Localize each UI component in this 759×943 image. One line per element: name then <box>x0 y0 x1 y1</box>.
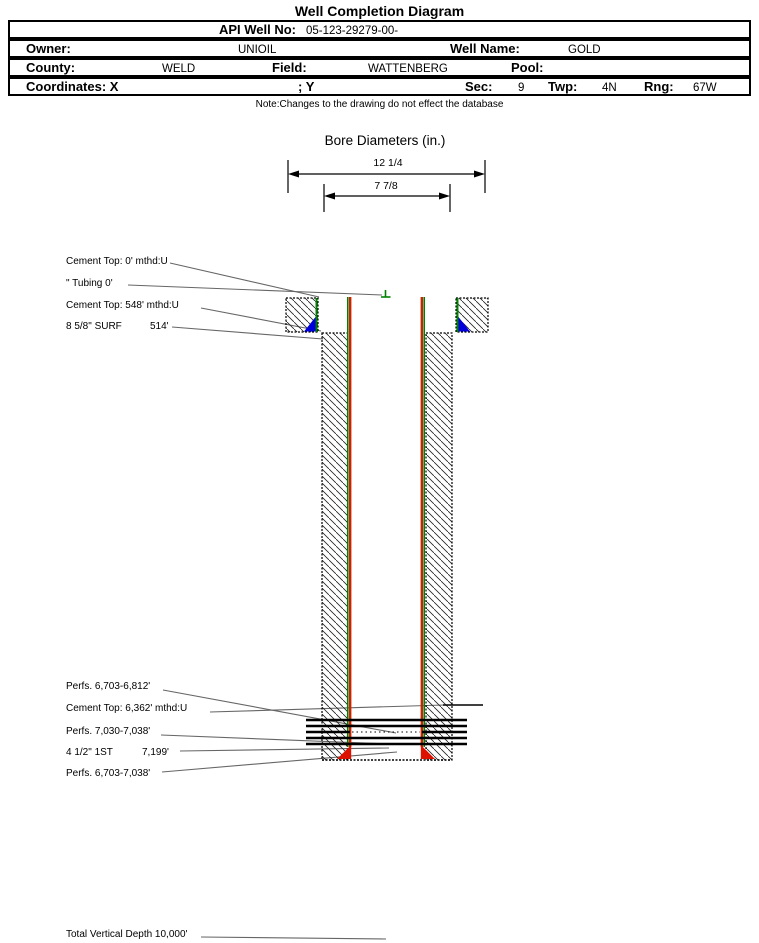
production-shoe-left <box>337 745 351 759</box>
annotation-surface-casing: 8 5/8" SURF <box>66 321 122 332</box>
county-value: WELD <box>162 62 195 76</box>
coordinates-y-label: ; Y <box>298 80 314 94</box>
well-completion-page: Well Completion Diagram API Well No: 05-… <box>0 0 759 943</box>
perforation-lines <box>306 720 467 744</box>
bore-diameter-inner-label: 7 7/8 <box>336 180 436 192</box>
header-row-county: County: WELD Field: WATTENBERG Pool: <box>8 58 751 77</box>
field-value: WATTENBERG <box>368 62 448 76</box>
header-row-coordinates: Coordinates: X ; Y Sec: 9 Twp: 4N Rng: 6… <box>8 77 751 96</box>
annotation-tubing-0: " Tubing 0' <box>66 278 113 289</box>
annotation-cement-top-6362: Cement Top: 6,362' mthd:U <box>66 703 187 714</box>
header-row-api: API Well No: 05-123-29279-00- <box>8 20 751 39</box>
surface-shoe-right <box>459 317 471 332</box>
rng-value: 67W <box>693 81 717 95</box>
owner-value: UNIOIL <box>238 43 276 57</box>
production-shoe-right <box>421 745 435 759</box>
well-name-value: GOLD <box>568 43 601 57</box>
bore-diameters-title: Bore Diameters (in.) <box>260 133 510 148</box>
rng-label: Rng: <box>644 80 674 94</box>
twp-value: 4N <box>602 81 617 95</box>
header-row-owner: Owner: UNIOIL Well Name: GOLD <box>8 39 751 58</box>
annotation-production-casing-depth: 7,199' <box>142 747 169 758</box>
tubing-top-marker <box>381 290 391 298</box>
production-cement-right <box>426 333 452 760</box>
api-value: 05-123-29279-00- <box>306 24 398 38</box>
twp-label: Twp: <box>548 80 577 94</box>
annotation-cement-top-0: Cement Top: 0' mthd:U <box>66 256 168 267</box>
surface-cement-left <box>286 298 318 332</box>
bore-diameter-outer-label: 12 1/4 <box>338 157 438 169</box>
database-note: Note:Changes to the drawing do not effec… <box>0 99 759 110</box>
surface-cement-right <box>456 298 488 332</box>
annotation-total-vertical-depth: Total Vertical Depth 10,000' <box>66 929 187 940</box>
county-label: County: <box>26 61 75 75</box>
production-cement-left <box>322 333 348 760</box>
page-title: Well Completion Diagram <box>0 3 759 19</box>
annotation-perfs-mid: Perfs. 7,030-7,038' <box>66 726 150 737</box>
pool-label: Pool: <box>511 61 544 75</box>
well-name-label: Well Name: <box>450 42 520 56</box>
annotation-leader-lines <box>128 263 444 939</box>
surface-shoe-left <box>304 317 316 332</box>
field-label: Field: <box>272 61 307 75</box>
owner-label: Owner: <box>26 42 71 56</box>
annotation-perfs-upper: Perfs. 6,703-6,812' <box>66 681 150 692</box>
annotation-production-casing: 4 1/2" 1ST <box>66 747 113 758</box>
sec-value: 9 <box>518 81 524 95</box>
annotation-cement-top-548: Cement Top: 548' mthd:U <box>66 300 179 311</box>
coordinates-label: Coordinates: X <box>26 80 118 94</box>
sec-label: Sec: <box>465 80 492 94</box>
api-label: API Well No: <box>190 23 296 37</box>
annotation-surface-casing-depth: 514' <box>150 321 169 332</box>
annotation-perfs-lower: Perfs. 6,703-7,038' <box>66 768 150 779</box>
